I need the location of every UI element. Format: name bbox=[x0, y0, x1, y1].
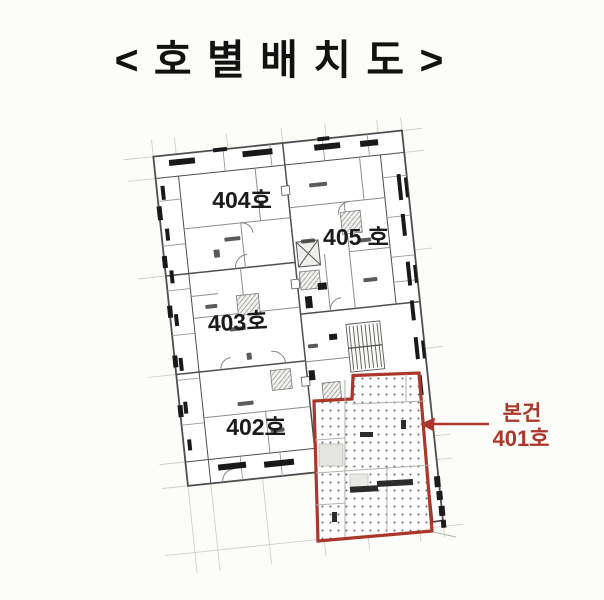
subject-callout: 본건 401호 bbox=[420, 402, 549, 451]
elevator bbox=[296, 240, 320, 267]
unit-label-403: 403호 bbox=[207, 307, 268, 336]
unit-label-405: 405 호 bbox=[323, 224, 389, 250]
unit-label-402: 402호 bbox=[226, 414, 286, 440]
staircase bbox=[346, 321, 385, 372]
subject-label-line1: 본건 bbox=[503, 402, 542, 425]
subject-label-line2: 401호 bbox=[493, 426, 550, 451]
unit-label-404: 404호 bbox=[212, 187, 272, 213]
floor-plan-image: 404호 405 호 403호 402호 본건 401호 bbox=[0, 0, 604, 600]
